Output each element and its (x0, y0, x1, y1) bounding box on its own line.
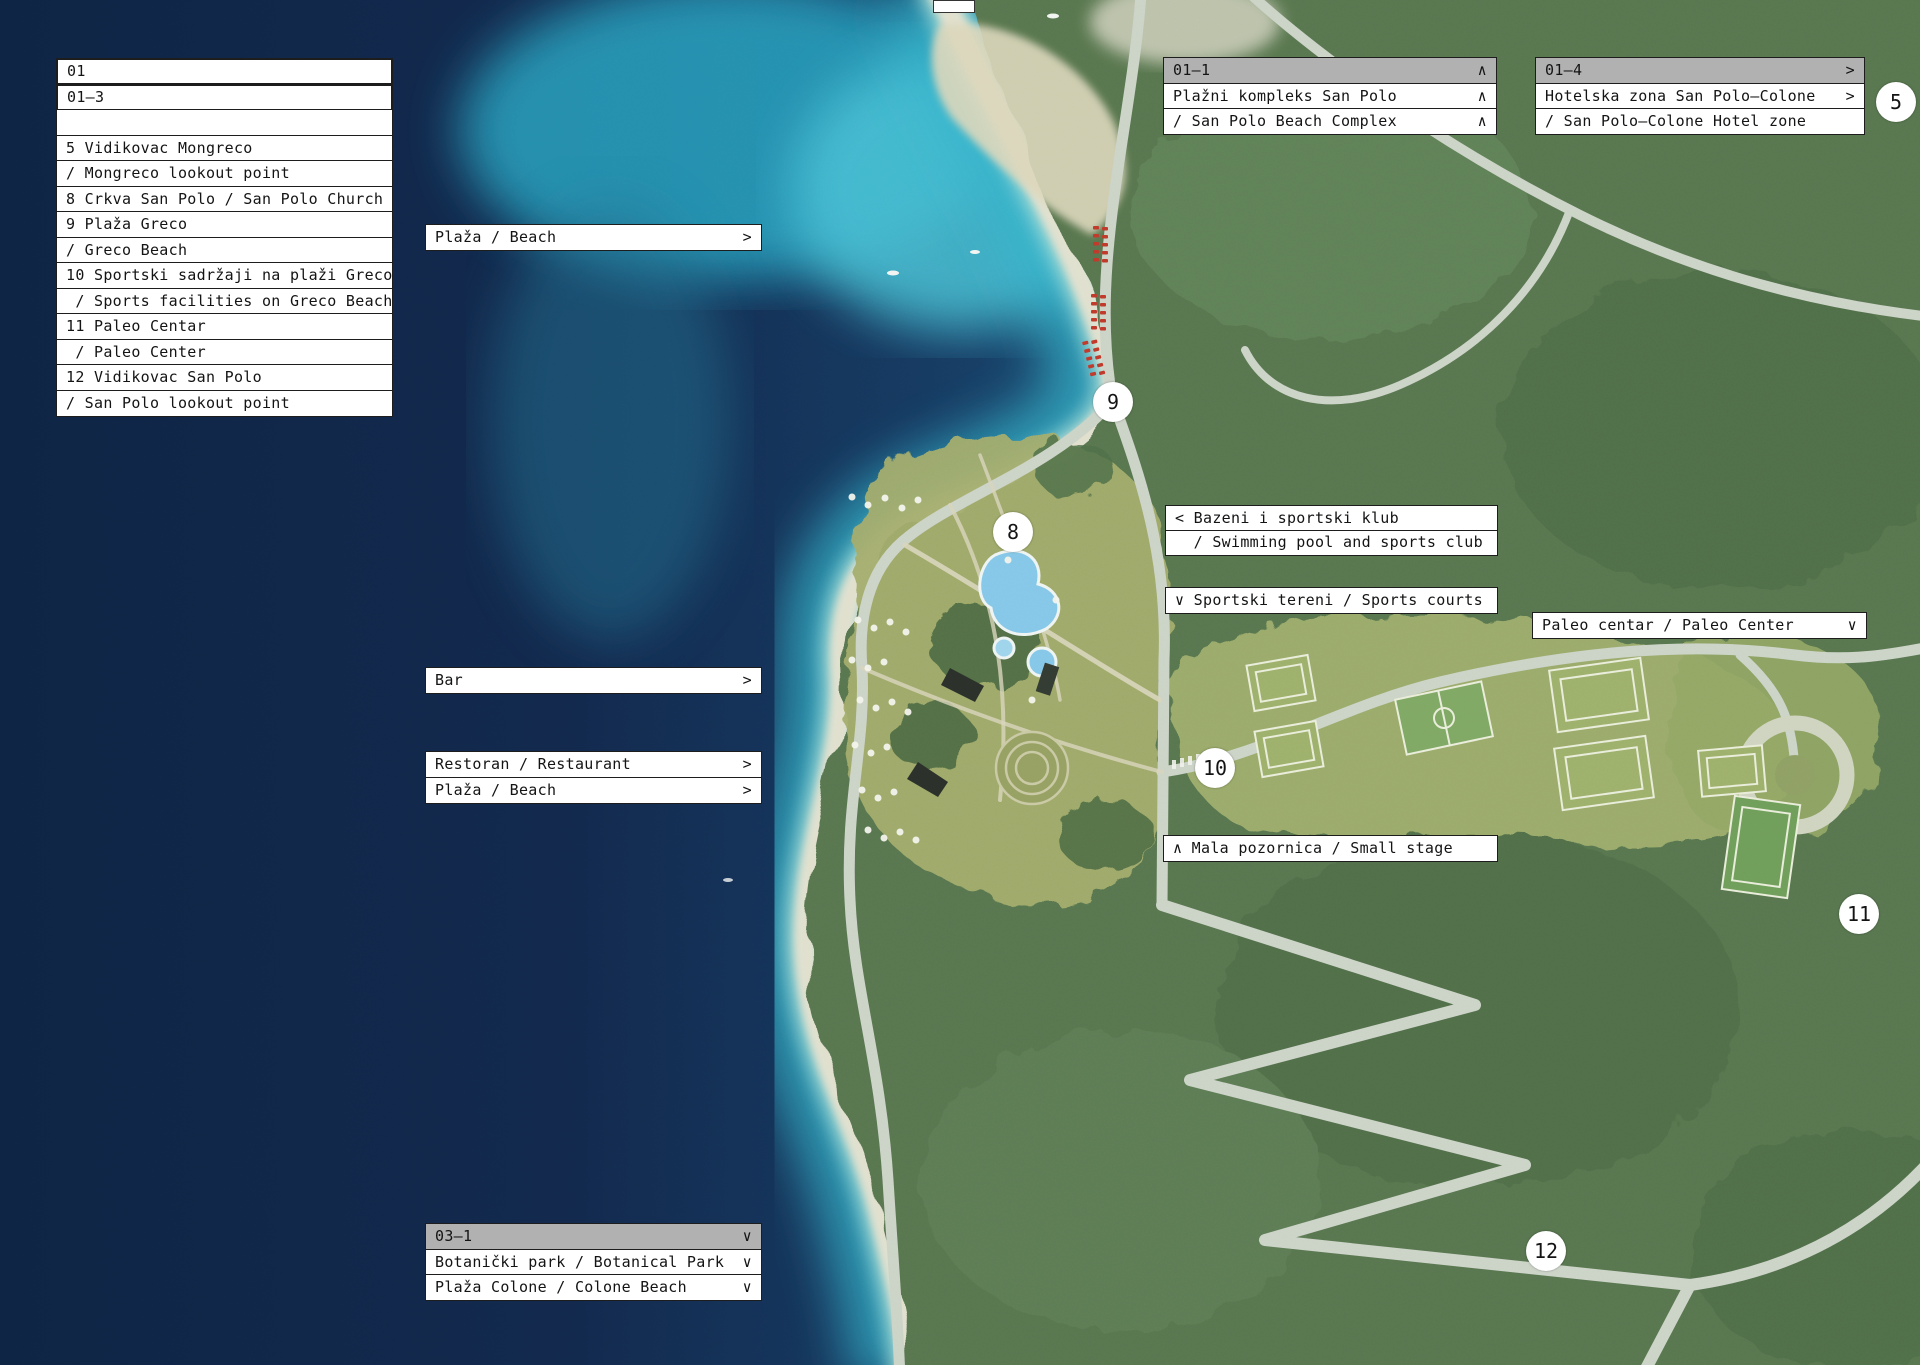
panel-03-1-header[interactable]: 03–1∨ (425, 1223, 762, 1250)
legend-row: 12 Vidikovac San Polo (56, 364, 393, 391)
label-bazeni[interactable]: < Bazeni i sportski klub / Swimming pool… (1165, 505, 1498, 556)
panel-01-4-row[interactable]: / San Polo–Colone Hotel zone (1535, 108, 1865, 135)
panel-03-1-row[interactable]: Plaža Colone / Colone Beach∨ (425, 1274, 762, 1301)
legend-row: / Paleo Center (56, 339, 393, 366)
chevron-up-icon[interactable]: ∧ (1478, 114, 1487, 129)
legend-subcode: 01–3 (67, 90, 104, 105)
panel-01-1-row[interactable]: / San Polo Beach Complex∧ (1163, 108, 1497, 135)
panel-03-1: 03–1∨ Botanički park / Botanical Park∨ P… (425, 1223, 762, 1301)
label-restoran-plaza: Restoran / Restaurant> Plaža / Beach> (425, 751, 762, 804)
label-sportski-tereni[interactable]: ∨ Sportski tereni / Sports courts (1165, 587, 1498, 614)
legend-row-empty (56, 109, 393, 136)
chevron-down-icon[interactable]: ∨ (1848, 618, 1857, 633)
legend-code-row[interactable]: 01 (56, 58, 393, 85)
legend-row: 11 Paleo Centar (56, 313, 393, 340)
marker-12[interactable]: 12 (1526, 1231, 1566, 1271)
chevron-down-icon[interactable]: ∨ (743, 1255, 752, 1270)
chevron-right-icon[interactable]: > (743, 757, 752, 772)
marker-9[interactable]: 9 (1093, 382, 1133, 422)
label-mala-pozornica[interactable]: ∧ Mala pozornica / Small stage (1163, 835, 1498, 862)
chevron-right-icon[interactable]: > (743, 783, 752, 798)
chevron-right-icon[interactable]: > (743, 230, 752, 245)
label-paleo-centar[interactable]: Paleo centar / Paleo Center∨ (1532, 612, 1867, 639)
chevron-down-icon[interactable]: ∨ (743, 1229, 752, 1244)
legend-subcode-row[interactable]: 01–3 (56, 84, 393, 111)
label-plaza-beach-mid[interactable]: Plaža / Beach> (425, 777, 762, 804)
chevron-right-icon[interactable]: > (1846, 89, 1855, 104)
label-plaza-beach-top[interactable]: Plaža / Beach> (425, 224, 762, 251)
chevron-up-icon[interactable]: ∧ (1478, 63, 1487, 78)
marker-10[interactable]: 10 (1195, 748, 1235, 788)
legend-row: 9 Plaža Greco (56, 211, 393, 238)
legend-row: / Sports facilities on Greco Beach (56, 288, 393, 315)
legend-row: 10 Sportski sadržaji na plaži Greco (56, 262, 393, 289)
chevron-right-icon[interactable]: > (743, 673, 752, 688)
cropped-label-box (933, 0, 975, 13)
legend-row: 5 Vidikovac Mongreco (56, 135, 393, 162)
masterplan-map-page: 01 01–3 5 Vidikovac Mongreco / Mongreco … (0, 0, 1920, 1365)
panel-01-4: 01–4> Hotelska zona San Polo–Colone> / S… (1535, 57, 1865, 135)
legend-row: / Greco Beach (56, 237, 393, 264)
chevron-up-icon[interactable]: ∧ (1478, 89, 1487, 104)
panel-01-1-row[interactable]: Plažni kompleks San Polo∧ (1163, 83, 1497, 110)
legend-code: 01 (67, 64, 86, 79)
marker-5[interactable]: 5 (1876, 82, 1916, 122)
panel-01-4-header[interactable]: 01–4> (1535, 57, 1865, 84)
legend-row: / Mongreco lookout point (56, 160, 393, 187)
panel-01-1: 01–1∧ Plažni kompleks San Polo∧ / San Po… (1163, 57, 1497, 135)
legend-row: / San Polo lookout point (56, 390, 393, 417)
marker-8[interactable]: 8 (993, 512, 1033, 552)
panel-03-1-row[interactable]: Botanički park / Botanical Park∨ (425, 1249, 762, 1276)
label-bar[interactable]: Bar> (425, 667, 762, 694)
chevron-down-icon[interactable]: ∨ (743, 1280, 752, 1295)
legend-panel: 01 01–3 5 Vidikovac Mongreco / Mongreco … (56, 58, 393, 417)
legend-row: 8 Crkva San Polo / San Polo Church (56, 186, 393, 213)
marker-11[interactable]: 11 (1839, 894, 1879, 934)
chevron-right-icon[interactable]: > (1846, 63, 1855, 78)
panel-01-4-row[interactable]: Hotelska zona San Polo–Colone> (1535, 83, 1865, 110)
label-restoran[interactable]: Restoran / Restaurant> (425, 751, 762, 778)
panel-01-1-header[interactable]: 01–1∧ (1163, 57, 1497, 84)
